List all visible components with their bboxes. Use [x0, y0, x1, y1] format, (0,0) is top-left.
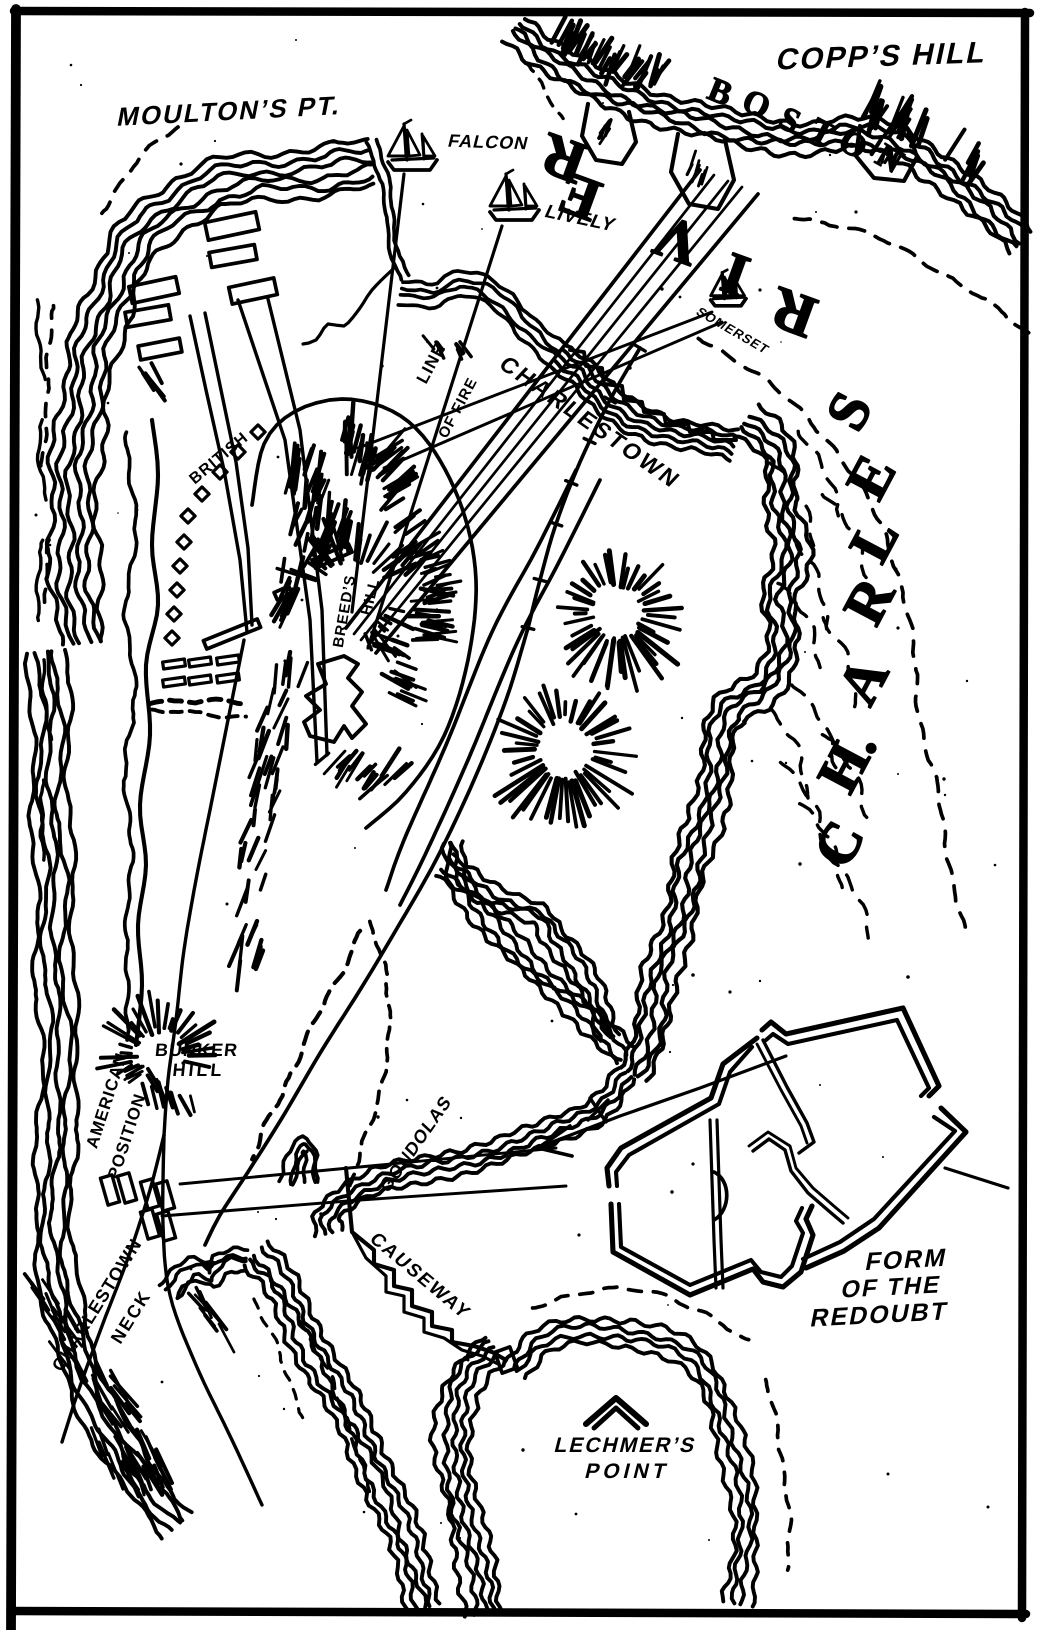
- svg-text:POINT: POINT: [583, 1459, 673, 1483]
- svg-text:FALCON: FALCON: [446, 131, 531, 153]
- svg-text:BUNKER: BUNKER: [154, 1040, 239, 1060]
- svg-text:LECHMER’S: LECHMER’S: [552, 1433, 700, 1457]
- svg-text:HILL: HILL: [172, 1060, 226, 1080]
